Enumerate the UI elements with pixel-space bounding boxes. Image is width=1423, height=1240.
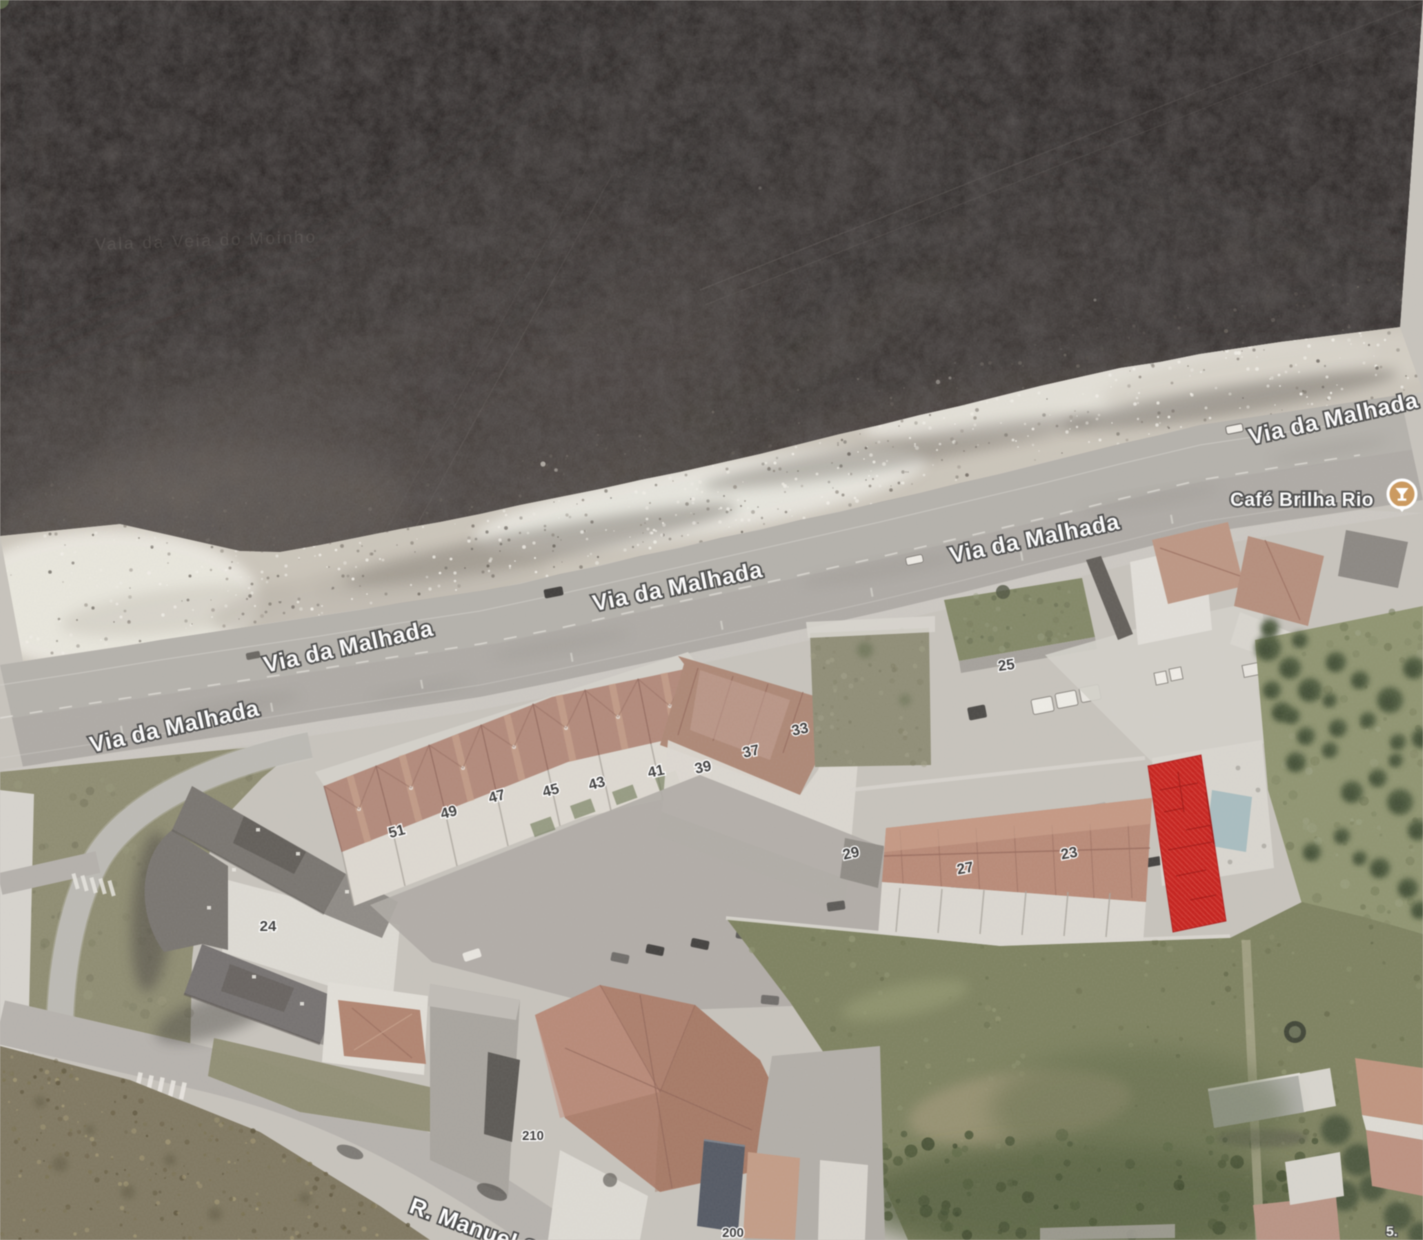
svg-text:5.: 5.	[1386, 1223, 1398, 1239]
svg-text:37: 37	[741, 742, 761, 762]
svg-text:41: 41	[646, 762, 666, 782]
svg-text:23: 23	[1060, 844, 1079, 864]
svg-text:210: 210	[522, 1128, 544, 1143]
svg-text:27: 27	[956, 859, 975, 879]
svg-text:Café Brilha Rio: Café Brilha Rio	[1230, 490, 1374, 511]
svg-text:25: 25	[997, 656, 1016, 675]
svg-text:33: 33	[790, 720, 810, 740]
svg-text:39: 39	[693, 758, 713, 778]
svg-text:29: 29	[841, 844, 861, 864]
svg-text:200: 200	[722, 1225, 744, 1240]
svg-text:24: 24	[260, 918, 277, 935]
